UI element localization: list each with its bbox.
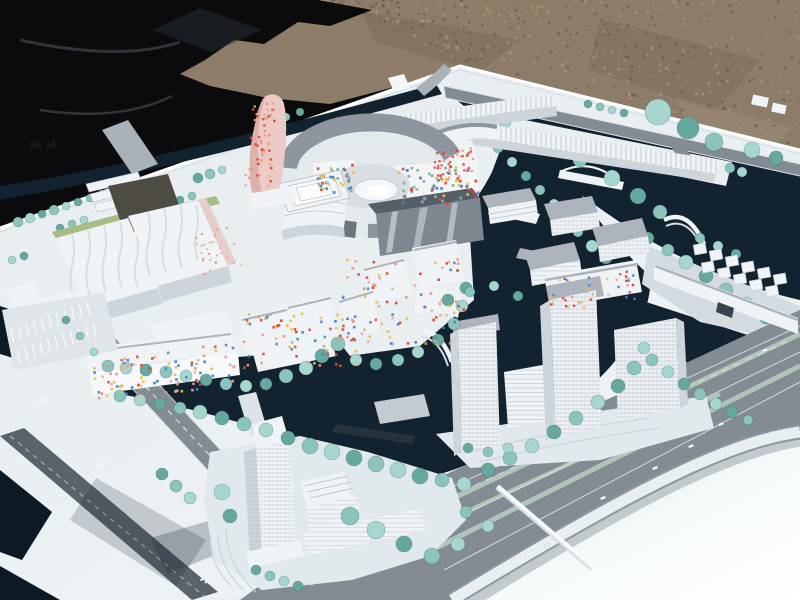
model-tree [368, 456, 384, 472]
mosaic-dot [472, 158, 474, 160]
mosaic-dot [353, 363, 356, 366]
mosaic-dot [193, 371, 196, 374]
mosaic-dot [341, 184, 344, 187]
mosaic-dot [339, 335, 342, 338]
mosaic-dot [167, 351, 170, 354]
mosaic-dot [625, 275, 628, 278]
mosaic-dot [552, 294, 555, 297]
mosaic-dot [407, 175, 410, 178]
mosaic-dot [195, 379, 198, 382]
mosaic-dot [428, 172, 431, 175]
model-tree [448, 318, 460, 330]
mosaic-dot [563, 278, 566, 281]
model-tree [513, 291, 523, 301]
mosaic-dot [210, 367, 213, 370]
mosaic-dot [367, 287, 370, 290]
mosaic-dot [263, 114, 266, 117]
model-tree [13, 217, 23, 227]
model-tree [611, 379, 625, 393]
mosaic-dot [461, 155, 463, 157]
model-tree [743, 415, 753, 425]
model-tree [259, 423, 273, 437]
mosaic-dot [459, 197, 462, 200]
mosaic-dot [430, 292, 433, 295]
mosaic-dot [260, 159, 263, 162]
mosaic-dot [153, 356, 156, 359]
mosaic-dot [564, 299, 567, 302]
model-tree [705, 133, 723, 151]
mosaic-dot [423, 198, 426, 201]
mosaic-dot [106, 394, 109, 397]
mosaic-dot [322, 353, 325, 356]
mosaic-dot [100, 392, 103, 395]
mosaic-dot [468, 167, 470, 169]
mosaic-dot [625, 280, 628, 283]
mosaic-dot [606, 278, 609, 281]
mosaic-dot [253, 105, 256, 108]
mosaic-dot [469, 147, 471, 149]
mosaic-dot [229, 363, 232, 366]
model-tree [412, 346, 424, 358]
model-tree [223, 509, 237, 523]
mosaic-dot [244, 174, 247, 177]
mosaic-dot [391, 317, 394, 320]
model-tree [215, 411, 229, 425]
model-tree [424, 548, 440, 564]
mosaic-dot [119, 385, 122, 388]
mosaic-dot [552, 297, 555, 300]
mosaic-dot [282, 335, 285, 338]
mosaic-dot [467, 152, 469, 154]
mosaic-dot [379, 277, 382, 280]
model-tree [62, 202, 70, 210]
mosaic-dot [248, 168, 251, 171]
mosaic-dot [256, 158, 259, 161]
mosaic-dot [456, 258, 459, 261]
mosaic-dot [247, 364, 250, 367]
mosaic-dot [461, 149, 463, 151]
mosaic-dot [588, 284, 591, 287]
mosaic-dot [352, 267, 355, 270]
mosaic-dot [578, 301, 581, 304]
mosaic-dot [339, 365, 342, 368]
model-tree [596, 103, 604, 111]
mosaic-dot [402, 189, 405, 192]
model-tree [678, 378, 690, 390]
mosaic-dot [372, 286, 375, 289]
mosaic-dot [275, 343, 278, 346]
mosaic-dot [264, 317, 267, 320]
model-tree [442, 294, 454, 306]
mosaic-dot [633, 298, 636, 301]
mosaic-dot [361, 332, 364, 335]
mosaic-dot [378, 274, 381, 277]
mosaic-dot [252, 108, 255, 111]
mosaic-dot [321, 174, 324, 177]
mosaic-dot [458, 175, 460, 177]
mosaic-dot [456, 153, 458, 155]
model-tree [8, 256, 16, 264]
mosaic-dot [437, 165, 439, 167]
mosaic-dot [307, 361, 310, 364]
model-tree [483, 447, 493, 457]
mosaic-dot [453, 321, 456, 324]
model-tree [76, 332, 84, 340]
mosaic-dot [474, 180, 477, 183]
mosaic-dot [336, 168, 339, 171]
mosaic-dot [336, 177, 339, 180]
mosaic-dot [463, 169, 465, 171]
mosaic-dot [590, 298, 593, 301]
mosaic-dot [326, 349, 329, 352]
mosaic-dot [347, 176, 350, 179]
model-tree [174, 402, 186, 414]
mosaic-dot [268, 143, 271, 146]
model-tree [74, 198, 82, 206]
mosaic-dot [256, 144, 259, 147]
mosaic-dot [333, 178, 336, 181]
mosaic-dot [138, 394, 141, 397]
mosaic-dot [474, 195, 477, 198]
model-tree [653, 205, 667, 219]
mosaic-dot [439, 167, 441, 169]
mosaic-dot [336, 339, 339, 342]
mosaic-dot [462, 308, 465, 311]
model-tree [521, 171, 531, 181]
model-tree [25, 213, 35, 223]
mosaic-dot [342, 168, 345, 171]
mosaic-dot [270, 167, 273, 170]
mosaic-dot [453, 312, 456, 315]
model-tree [460, 506, 472, 518]
mosaic-dot [466, 168, 468, 170]
model-tree [370, 358, 382, 370]
model-tree [281, 431, 295, 445]
mosaic-dot [267, 109, 270, 112]
mosaic-dot [368, 335, 371, 338]
model-tree [503, 443, 513, 453]
mosaic-dot [214, 349, 217, 352]
mosaic-dot [367, 340, 370, 343]
model-tree [694, 388, 706, 400]
model-tree [296, 108, 304, 116]
model-tree [465, 287, 475, 297]
mosaic-dot [458, 150, 460, 152]
mosaic-dot [454, 169, 457, 172]
mosaic-dot [264, 130, 267, 133]
mosaic-dot [335, 363, 338, 366]
model-tree [188, 192, 196, 200]
mosaic-dot [122, 367, 125, 370]
mosaic-dot [264, 134, 267, 137]
mosaic-dot [437, 174, 439, 176]
mosaic-dot [449, 165, 452, 168]
mosaic-dot [317, 167, 320, 170]
mosaic-dot [352, 171, 355, 174]
mosaic-dot [368, 281, 371, 284]
model-tree [489, 281, 499, 291]
mosaic-dot [125, 392, 128, 395]
mosaic-dot [402, 168, 405, 171]
photo-architectural-model [0, 0, 800, 600]
model-tree [260, 378, 272, 390]
mosaic-dot [342, 325, 345, 328]
mosaic-dot [446, 202, 449, 205]
model-tree [481, 463, 495, 477]
mosaic-dot [123, 362, 126, 365]
model-tree [482, 520, 494, 532]
model-tree [193, 405, 207, 419]
mosaic-dot [335, 327, 338, 330]
model-tree [90, 348, 98, 356]
mosaic-dot [244, 184, 247, 187]
mosaic-dot [632, 284, 635, 287]
model-tree [569, 411, 583, 425]
mosaic-dot [465, 185, 468, 188]
mosaic-dot [334, 320, 337, 323]
mosaic-dot [403, 182, 406, 185]
mosaic-dot [440, 164, 442, 166]
mosaic-dot [319, 185, 322, 188]
model-tree [180, 370, 192, 382]
mosaic-dot [347, 180, 350, 183]
mosaic-dot [192, 382, 195, 385]
mosaic-dot [262, 118, 265, 121]
mosaic-dot [607, 293, 610, 296]
model-tree [547, 425, 561, 439]
mosaic-dot [324, 336, 327, 339]
mosaic-dot [414, 341, 417, 344]
mosaic-dot [421, 200, 424, 203]
mosaic-dot [435, 316, 438, 319]
mosaic-dot [432, 184, 435, 187]
mosaic-dot [174, 373, 177, 376]
mosaic-dot [342, 296, 345, 299]
mosaic-dot [386, 301, 389, 304]
mosaic-dot [168, 362, 171, 365]
mosaic-dot [380, 323, 383, 326]
mosaic-dot [625, 296, 628, 299]
mosaic-dot [437, 278, 440, 281]
east-grid-slab [614, 318, 688, 420]
model-tree [350, 354, 362, 366]
mosaic-dot [441, 200, 444, 203]
mosaic-dot [199, 372, 202, 375]
model-tree [638, 342, 650, 354]
mosaic-dot [617, 286, 620, 289]
mosaic-dot [355, 350, 358, 353]
mosaic-dot [448, 168, 450, 170]
model-tree [324, 444, 340, 460]
mosaic-dot [273, 120, 276, 123]
model-tree [435, 473, 449, 487]
model-tree [525, 439, 539, 453]
mosaic-dot [195, 363, 198, 366]
mosaic-dot [423, 306, 426, 309]
mosaic-dot [591, 293, 594, 296]
mosaic-dot [372, 284, 375, 287]
mosaic-dot [440, 299, 443, 302]
mosaic-dot [433, 166, 435, 168]
mosaic-dot [419, 176, 422, 179]
mosaic-dot [176, 389, 179, 392]
mosaic-dot [263, 151, 266, 154]
model-tree [218, 166, 226, 174]
mosaic-dot [341, 318, 344, 321]
model-tree [346, 450, 362, 466]
mosaic-dot [93, 371, 96, 374]
mosaic-dot [290, 328, 293, 331]
model-tree [662, 366, 674, 378]
mosaic-dot [159, 385, 162, 388]
mosaic-dot [449, 161, 451, 163]
mosaic-dot [439, 314, 442, 317]
mosaic-dot [243, 366, 246, 369]
mosaic-dot [260, 141, 263, 144]
mosaic-dot [439, 174, 442, 177]
mosaic-dot [415, 188, 418, 191]
mosaic-dot [625, 270, 628, 273]
mosaic-dot [615, 278, 618, 281]
mosaic-dot [452, 156, 454, 158]
mosaic-dot [395, 302, 398, 305]
mosaic-dot [357, 273, 360, 276]
mosaic-dot [391, 313, 394, 316]
model-tree [586, 240, 598, 252]
mosaic-dot [364, 295, 367, 298]
mosaic-dot [325, 187, 328, 190]
mosaic-dot [263, 124, 266, 127]
model-tree [725, 163, 735, 173]
mosaic-dot [126, 364, 129, 367]
mosaic-dot [268, 175, 271, 178]
mosaic-dot [228, 374, 231, 377]
mosaic-dot [294, 346, 297, 349]
mosaic-dot [333, 191, 336, 194]
mosaic-dot [251, 167, 254, 170]
mosaic-dot [549, 296, 552, 299]
mosaic-dot [313, 362, 316, 365]
mosaic-dot [224, 356, 227, 359]
mosaic-dot [120, 359, 123, 362]
mosaic-dot [268, 149, 271, 152]
mosaic-dot [410, 189, 413, 192]
model-tree [240, 380, 252, 392]
mosaic-dot [280, 319, 283, 322]
mosaic-dot [260, 362, 263, 365]
model-tree [205, 169, 215, 179]
mosaic-dot [342, 328, 345, 331]
mosaic-dot [329, 175, 332, 178]
mosaic-dot [353, 326, 356, 329]
mosaic-dot [246, 319, 249, 322]
mosaic-dot [275, 337, 278, 340]
mosaic-dot [434, 195, 437, 198]
model-tree [49, 205, 59, 215]
mosaic-dot [132, 363, 135, 366]
model-tree [20, 252, 28, 260]
mosaic-dot [470, 150, 472, 152]
mosaic-dot [329, 328, 332, 331]
mosaic-dot [296, 338, 299, 341]
mosaic-dot [447, 163, 449, 165]
model-tree [630, 188, 646, 204]
mosaic-dot [466, 155, 468, 157]
mosaic-dot [196, 388, 199, 391]
mosaic-dot [406, 169, 409, 172]
model-tree [645, 99, 671, 125]
mosaic-dot [449, 269, 452, 272]
mosaic-dot [109, 372, 112, 375]
mosaic-dot [97, 391, 100, 394]
model-tree [38, 210, 46, 218]
model-photo-canvas [0, 0, 800, 600]
mosaic-dot [272, 326, 275, 329]
mosaic-dot [257, 163, 260, 166]
model-tree [214, 484, 230, 500]
mosaic-dot [262, 353, 265, 356]
mosaic-dot [269, 313, 272, 316]
mosaic-dot [444, 166, 447, 169]
model-tree [154, 398, 166, 410]
mosaic-dot [444, 178, 447, 181]
mosaic-dot [436, 343, 439, 346]
mosaic-dot [335, 353, 338, 356]
mosaic-dot [175, 366, 178, 369]
mosaic-dot [327, 183, 330, 186]
mosaic-dot [566, 279, 569, 282]
model-tree [769, 151, 783, 165]
mosaic-dot [366, 276, 369, 279]
mosaic-dot [407, 342, 410, 345]
mosaic-dot [211, 374, 214, 377]
mosaic-dot [126, 359, 129, 362]
mosaic-dot [431, 174, 434, 177]
mosaic-dot [140, 376, 143, 379]
mosaic-dot [440, 177, 442, 179]
mosaic-dot [448, 176, 450, 178]
mosaic-dot [260, 319, 263, 322]
mosaic-dot [101, 375, 104, 378]
mosaic-dot [459, 180, 462, 183]
mosaic-dot [107, 365, 110, 368]
mosaic-dot [354, 315, 357, 318]
mosaic-dot [373, 261, 376, 264]
mosaic-dot [269, 163, 272, 166]
mosaic-dot [346, 317, 349, 320]
mosaic-dot [434, 337, 437, 340]
mosaic-dot [425, 342, 428, 345]
model-tree [367, 521, 385, 539]
mosaic-dot [351, 319, 354, 322]
mosaic-dot [327, 353, 330, 356]
model-tree [677, 117, 699, 139]
model-tree [535, 185, 545, 195]
model-tree [503, 451, 517, 465]
mosaic-dot [431, 187, 434, 190]
mosaic-dot [583, 306, 586, 309]
mosaic-dot [153, 382, 156, 385]
mosaic-dot [177, 364, 180, 367]
mosaic-dot [136, 355, 139, 358]
mosaic-dot [346, 173, 349, 176]
mosaic-dot [416, 169, 419, 172]
mosaic-dot [107, 381, 110, 384]
mosaic-dot [457, 262, 460, 265]
mosaic-dot [289, 320, 292, 323]
mosaic-dot [170, 380, 173, 383]
model-tree [451, 537, 465, 551]
